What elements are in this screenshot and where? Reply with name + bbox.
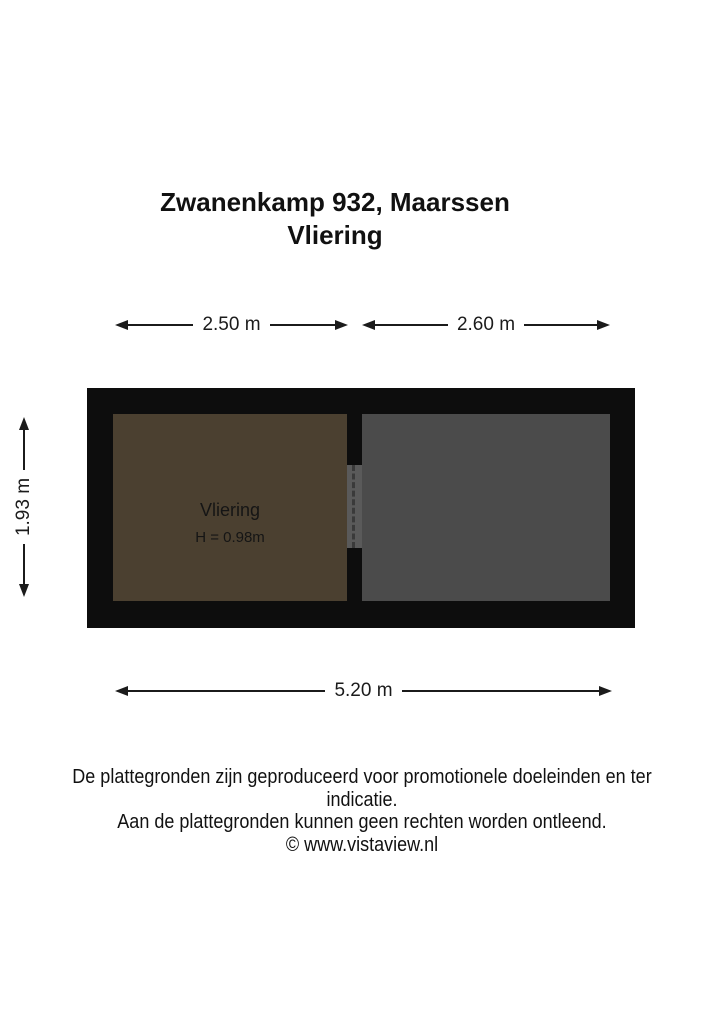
dimension-line: [402, 690, 599, 692]
dimension-bottom: 5.20 m: [115, 682, 612, 700]
arrowhead-down-icon: [19, 584, 29, 597]
dimension-label-wrap: 1.93 m: [0, 470, 53, 544]
room-attic-right: [362, 414, 610, 601]
dimension-line: [23, 544, 25, 584]
dimension-label-left: 1.93 m: [13, 478, 35, 536]
dimension-top-left: 2.50 m: [115, 316, 348, 334]
floorplan-outline: Vliering H = 0.98m: [87, 388, 635, 628]
copyright-line: © www.vistaview.nl: [36, 834, 688, 857]
dimension-label-top-right: 2.60 m: [448, 316, 524, 334]
arrowhead-right-icon: [597, 320, 610, 330]
disclaimer-line-2: Aan de plattegronden kunnen geen rechten…: [36, 811, 688, 834]
dimension-top-right: 2.60 m: [362, 316, 610, 334]
room-name-label: Vliering: [113, 500, 347, 520]
arrowhead-right-icon: [335, 320, 348, 330]
arrowhead-left-icon: [115, 320, 128, 330]
dimension-line: [128, 690, 325, 692]
dimension-left: 1.93 m: [16, 417, 32, 597]
address-title: Zwanenkamp 932, Maarssen: [0, 186, 670, 219]
dimension-label-top-left: 2.50 m: [193, 316, 269, 334]
page-title: Zwanenkamp 932, Maarssen Vliering: [0, 186, 670, 252]
room-vliering: Vliering H = 0.98m: [113, 414, 347, 601]
arrowhead-right-icon: [599, 686, 612, 696]
floor-title: Vliering: [0, 219, 670, 252]
dimension-line: [23, 430, 25, 470]
dimension-line: [270, 324, 335, 326]
dimension-line: [375, 324, 448, 326]
room-height-label: H = 0.98m: [113, 529, 347, 546]
arrowhead-left-icon: [362, 320, 375, 330]
hatch-opening: [347, 465, 362, 548]
disclaimer-line-1: De plattegronden zijn geproduceerd voor …: [36, 766, 688, 811]
dimension-line: [524, 324, 597, 326]
arrowhead-left-icon: [115, 686, 128, 696]
disclaimer: De plattegronden zijn geproduceerd voor …: [36, 766, 688, 856]
dimension-line: [128, 324, 193, 326]
dimension-label-bottom: 5.20 m: [325, 682, 401, 700]
floorplan-page: Zwanenkamp 932, Maarssen Vliering 2.50 m…: [0, 0, 724, 1024]
room-label-group: Vliering H = 0.98m: [113, 500, 347, 546]
arrowhead-up-icon: [19, 417, 29, 430]
